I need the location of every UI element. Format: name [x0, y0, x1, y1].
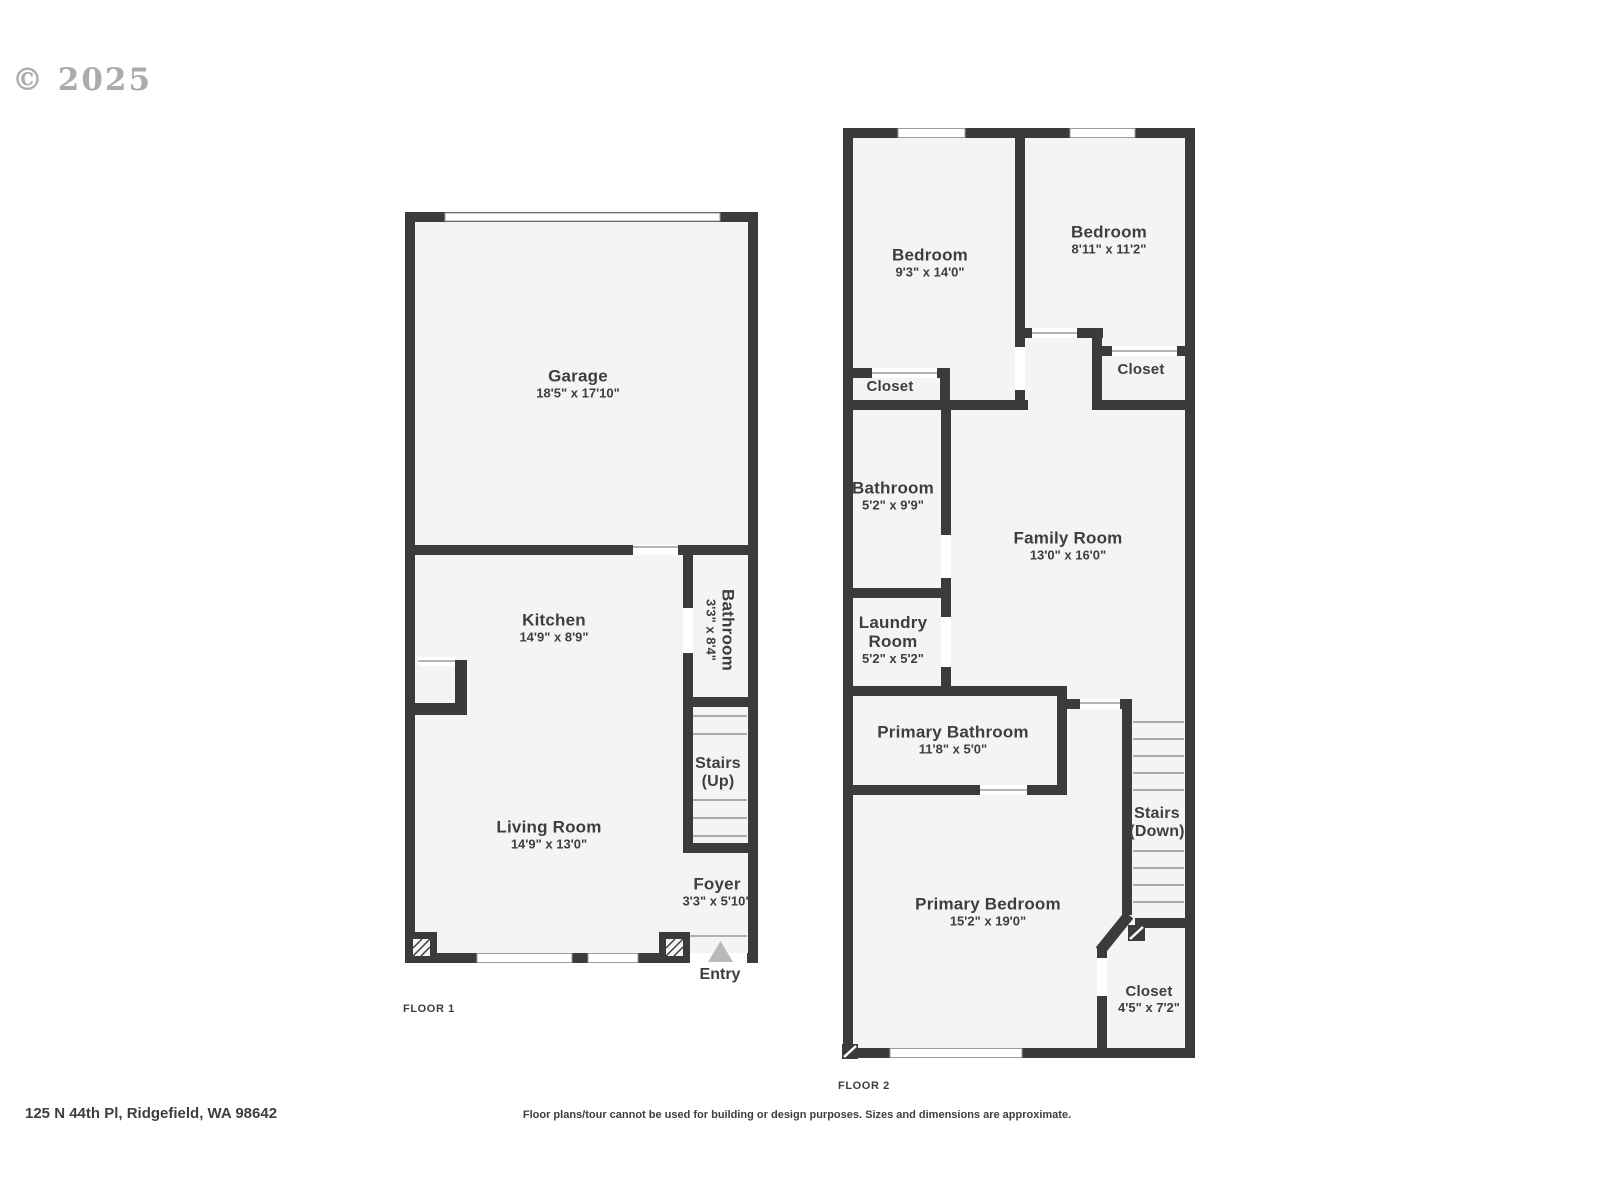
room-label-laundry-room: Laundry Room 5'2" x 5'2": [852, 613, 934, 667]
room-label-stairs-down: Stairs (Down): [1129, 805, 1184, 841]
porch-post-left: [406, 932, 437, 963]
room-label-closet1: Closet: [866, 379, 913, 395]
room-label-closet2: Closet: [1117, 362, 1164, 378]
room-label-kitchen: Kitchen 14'9" x 8'9": [519, 611, 588, 646]
disclaimer-text: Floor plans/tour cannot be used for buil…: [523, 1109, 1071, 1121]
room-label-living-room: Living Room 14'9" x 13'0": [496, 818, 601, 853]
room-label-primary-bedroom: Primary Bedroom 15'2" x 19'0": [915, 895, 1061, 930]
room-label-primary-closet: Closet 4'5" x 7'2": [1118, 984, 1180, 1016]
floor-plan-svg: [0, 0, 1600, 1200]
room-label-stairs-up: Stairs (Up): [695, 755, 741, 791]
room-label-bathroom-floor2: Bathroom 5'2" x 9'9": [852, 479, 934, 514]
room-label-garage: Garage 18'5" x 17'10": [536, 367, 620, 402]
property-address: 125 N 44th Pl, Ridgefield, WA 98642: [25, 1105, 277, 1122]
door-marker-closet: [1128, 925, 1145, 941]
floor2-tag: FLOOR 2: [838, 1080, 890, 1092]
porch-post-right: [659, 932, 690, 963]
room-label-foyer: Foyer 3'3" x 5'10": [682, 875, 751, 910]
floor-plan-page: © 2025: [0, 0, 1600, 1200]
garage-door: [445, 213, 720, 221]
door-marker-bottom-left: [842, 1044, 858, 1059]
entry-label: Entry: [700, 966, 741, 984]
room-label-family-room: Family Room 13'0" x 16'0": [1014, 529, 1123, 564]
room-label-bedroom2: Bedroom 8'11" x 11'2": [1071, 223, 1147, 258]
room-label-bedroom1: Bedroom 9'3" x 14'0": [892, 246, 968, 281]
room-label-bathroom-floor1: Bathroom 3'3" x 8'4": [703, 589, 738, 671]
room-label-primary-bathroom: Primary Bathroom 11'8" x 5'0": [877, 723, 1029, 758]
floor1-tag: FLOOR 1: [403, 1003, 455, 1015]
